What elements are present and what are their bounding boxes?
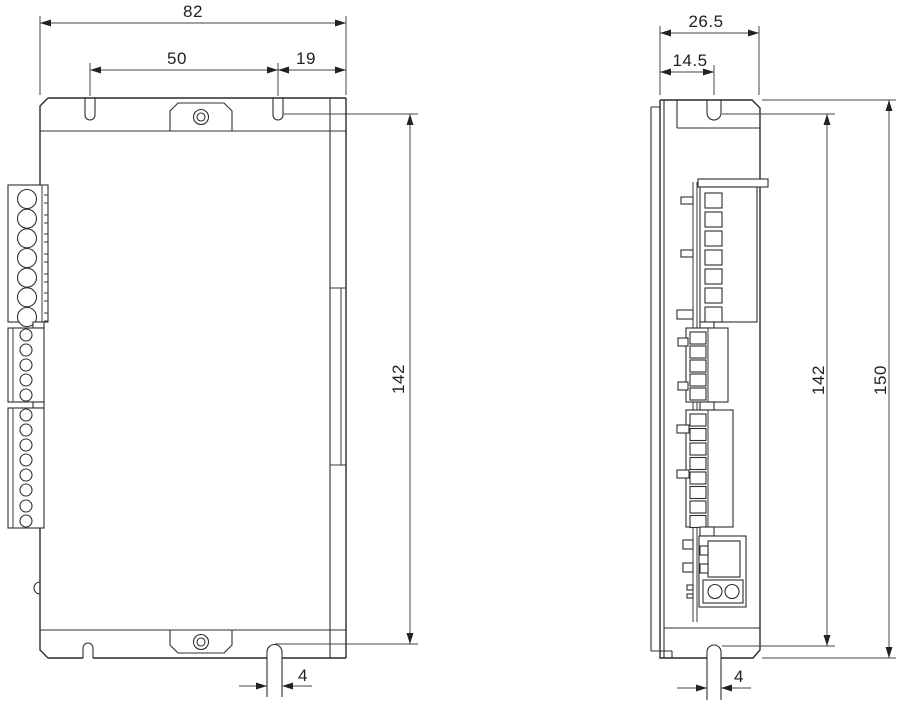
dim-front-width-label: 82 [183,2,203,21]
dim-side-slot-width-label: 4 [734,667,744,686]
front-view-connectors [8,185,48,528]
front-top-screw-inner [197,113,205,121]
side-connector-joint-1 [700,322,714,328]
side-rj-port [708,541,740,577]
dim-side-slot-offset-label: 14.5 [672,51,707,70]
front-bottom-slot-right [267,645,282,698]
dim-front-mount-height-label: 142 [389,364,408,394]
dim-front-mount-span-label: 50 [167,49,187,68]
dim-side-mount-height-label: 142 [809,365,828,395]
side-led-2 [725,585,739,599]
front-top-slot-right [273,98,283,120]
front-connector-joint-2 [33,402,44,408]
dim-side-depth-label: 26.5 [688,12,723,31]
dim-front-mount-edge-label: 19 [296,49,316,68]
front-view: 82 50 19 142 4 [8,2,418,697]
side-bottom-slot [707,645,721,700]
side-top-slot [707,100,721,120]
side-connector-power-lip [698,179,768,187]
side-view: 26.5 14.5 142 150 4 [651,12,896,700]
front-bottom-slot-left [83,643,93,658]
drawing-canvas: 82 50 19 142 4 [0,0,908,710]
dim-front-slot-width-label: 4 [298,666,308,685]
front-left-bump [34,582,40,594]
side-connector-joint-2 [700,402,714,410]
front-connector-joint-1 [33,322,44,328]
side-view-connectors [677,179,768,607]
side-connector-joint-3 [700,527,714,536]
dim-side-total-height-label: 150 [871,365,890,395]
front-bottom-screw-inner [197,638,205,646]
drawing-sheet: 82 50 19 142 4 [0,0,908,710]
front-view-dimensions: 82 50 19 142 4 [40,2,418,690]
front-top-slot-left [85,98,95,120]
side-led-1 [708,585,722,599]
front-view-body [34,98,346,697]
